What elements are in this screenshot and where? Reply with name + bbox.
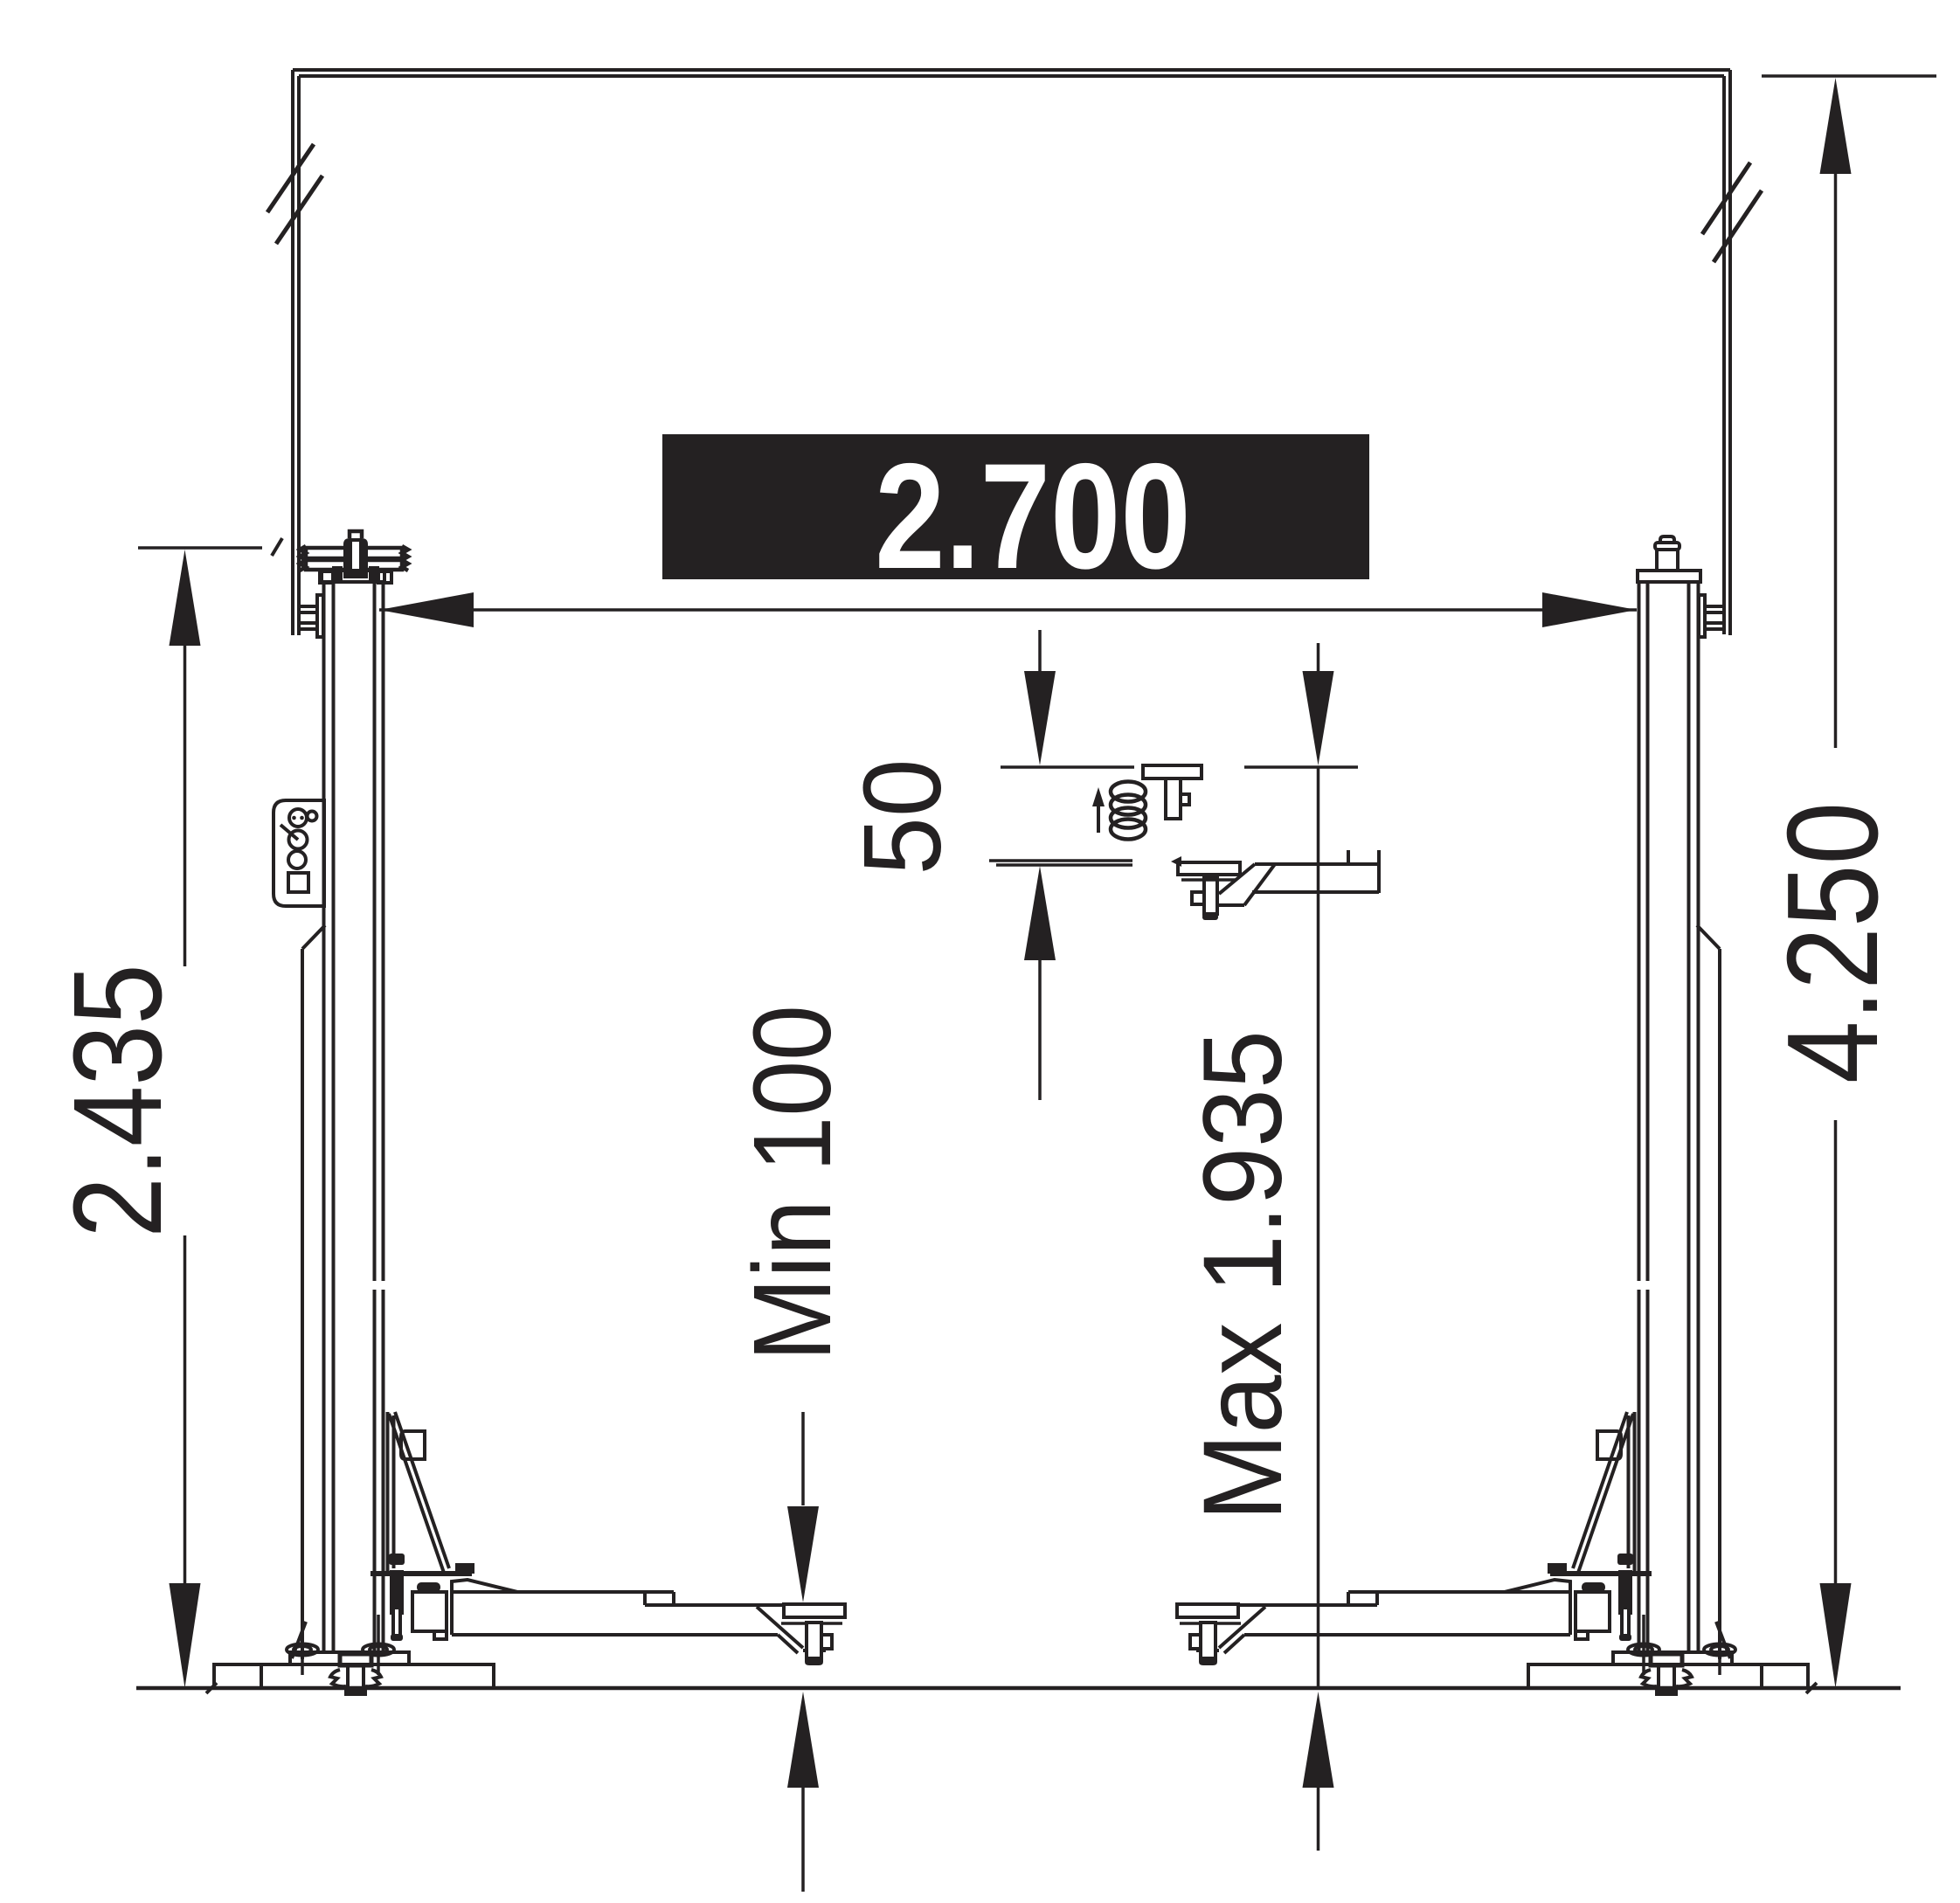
svg-text:2.435: 2.435 (47, 964, 188, 1237)
svg-text:2.700: 2.700 (875, 432, 1191, 600)
svg-text:Max 1.935: Max 1.935 (1181, 1030, 1306, 1521)
svg-text:4.250: 4.250 (1761, 802, 1905, 1083)
svg-text:50: 50 (841, 758, 964, 875)
svg-text:Min 100: Min 100 (731, 1005, 854, 1361)
